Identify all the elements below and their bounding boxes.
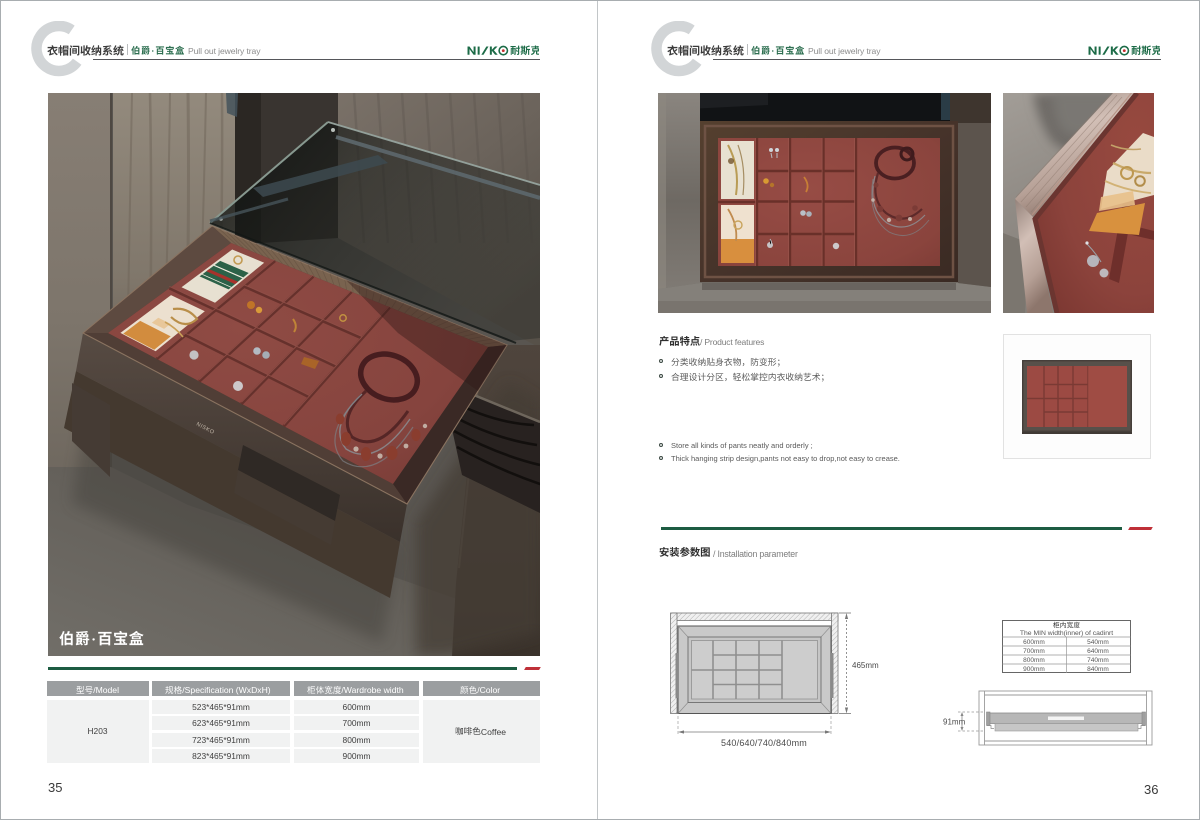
svg-text:840mm: 840mm	[1087, 666, 1109, 673]
svg-text:465mm: 465mm	[852, 661, 879, 670]
svg-text:700mm: 700mm	[1023, 648, 1045, 655]
svg-text:800mm: 800mm	[1023, 657, 1045, 664]
svg-text:740mm: 740mm	[1087, 657, 1109, 664]
svg-text:The MIN width(inner) of cadinr: The MIN width(inner) of cadinrt	[1020, 630, 1113, 637]
svg-text:91mm: 91mm	[943, 718, 966, 727]
svg-text:900mm: 900mm	[1023, 666, 1045, 673]
svg-text:540mm: 540mm	[1087, 639, 1109, 646]
svg-text:540/640/740/840mm: 540/640/740/840mm	[721, 738, 807, 748]
svg-text:640mm: 640mm	[1087, 648, 1109, 655]
svg-text:600mm: 600mm	[1023, 639, 1045, 646]
